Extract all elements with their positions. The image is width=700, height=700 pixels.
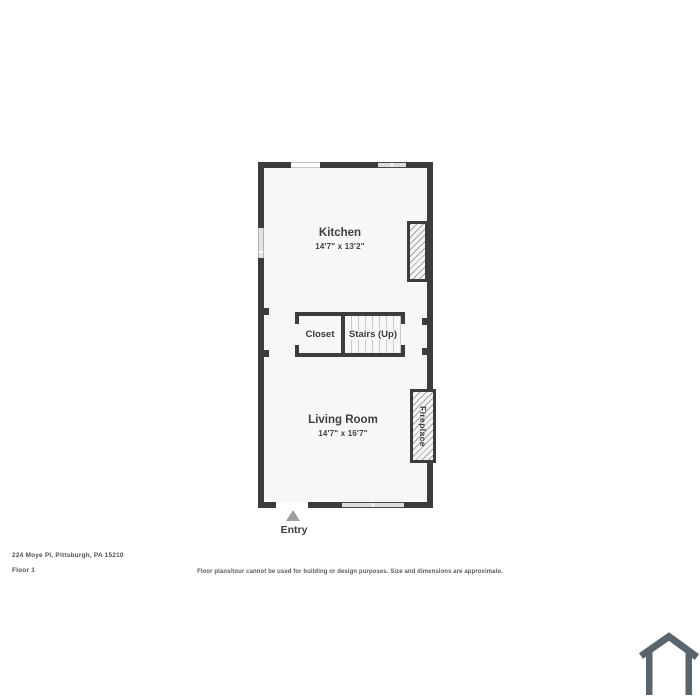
entry-door-opening [276, 502, 308, 508]
address-text: 224 Moye Pl, Pittsburgh, PA 15210 [12, 552, 124, 559]
wall-stub [422, 348, 427, 355]
closet-label: Closet [304, 329, 335, 340]
disclaimer-text: Floor plans/tour cannot be used for buil… [0, 569, 700, 575]
house-icon [638, 629, 700, 696]
living-room-label: Living Room [264, 414, 422, 426]
window-top-left-icon [291, 162, 320, 168]
kitchen-room: Kitchen 14'7" x 13'2" [264, 227, 416, 251]
interior-wall [401, 345, 405, 357]
interior-wall [295, 353, 405, 357]
stairs-room: Stairs (Up) [345, 316, 401, 353]
living-room-dimensions: 14'7" x 16'7" [264, 429, 422, 438]
interior-wall [401, 312, 405, 324]
entry-label: Entry [264, 524, 324, 536]
closet-stairs-block: Closet Stairs (Up) [295, 312, 405, 357]
kitchen-label: Kitchen [264, 227, 416, 239]
kitchen-dimensions: 14'7" x 13'2" [264, 242, 416, 251]
window-top-right-icon [378, 162, 406, 168]
floor-plan-page: Fireplace Closet Stairs (Up) Kitchen 14'… [0, 0, 700, 700]
wall-stub [422, 318, 427, 325]
window-bottom-icon [342, 502, 404, 508]
closet-room: Closet [299, 316, 341, 353]
living-room: Living Room 14'7" x 16'7" [264, 414, 422, 438]
wall-stub [264, 308, 269, 315]
wall-stub [264, 350, 269, 357]
stairs-label: Stairs (Up) [348, 329, 398, 340]
entry-arrow-icon [286, 510, 300, 521]
